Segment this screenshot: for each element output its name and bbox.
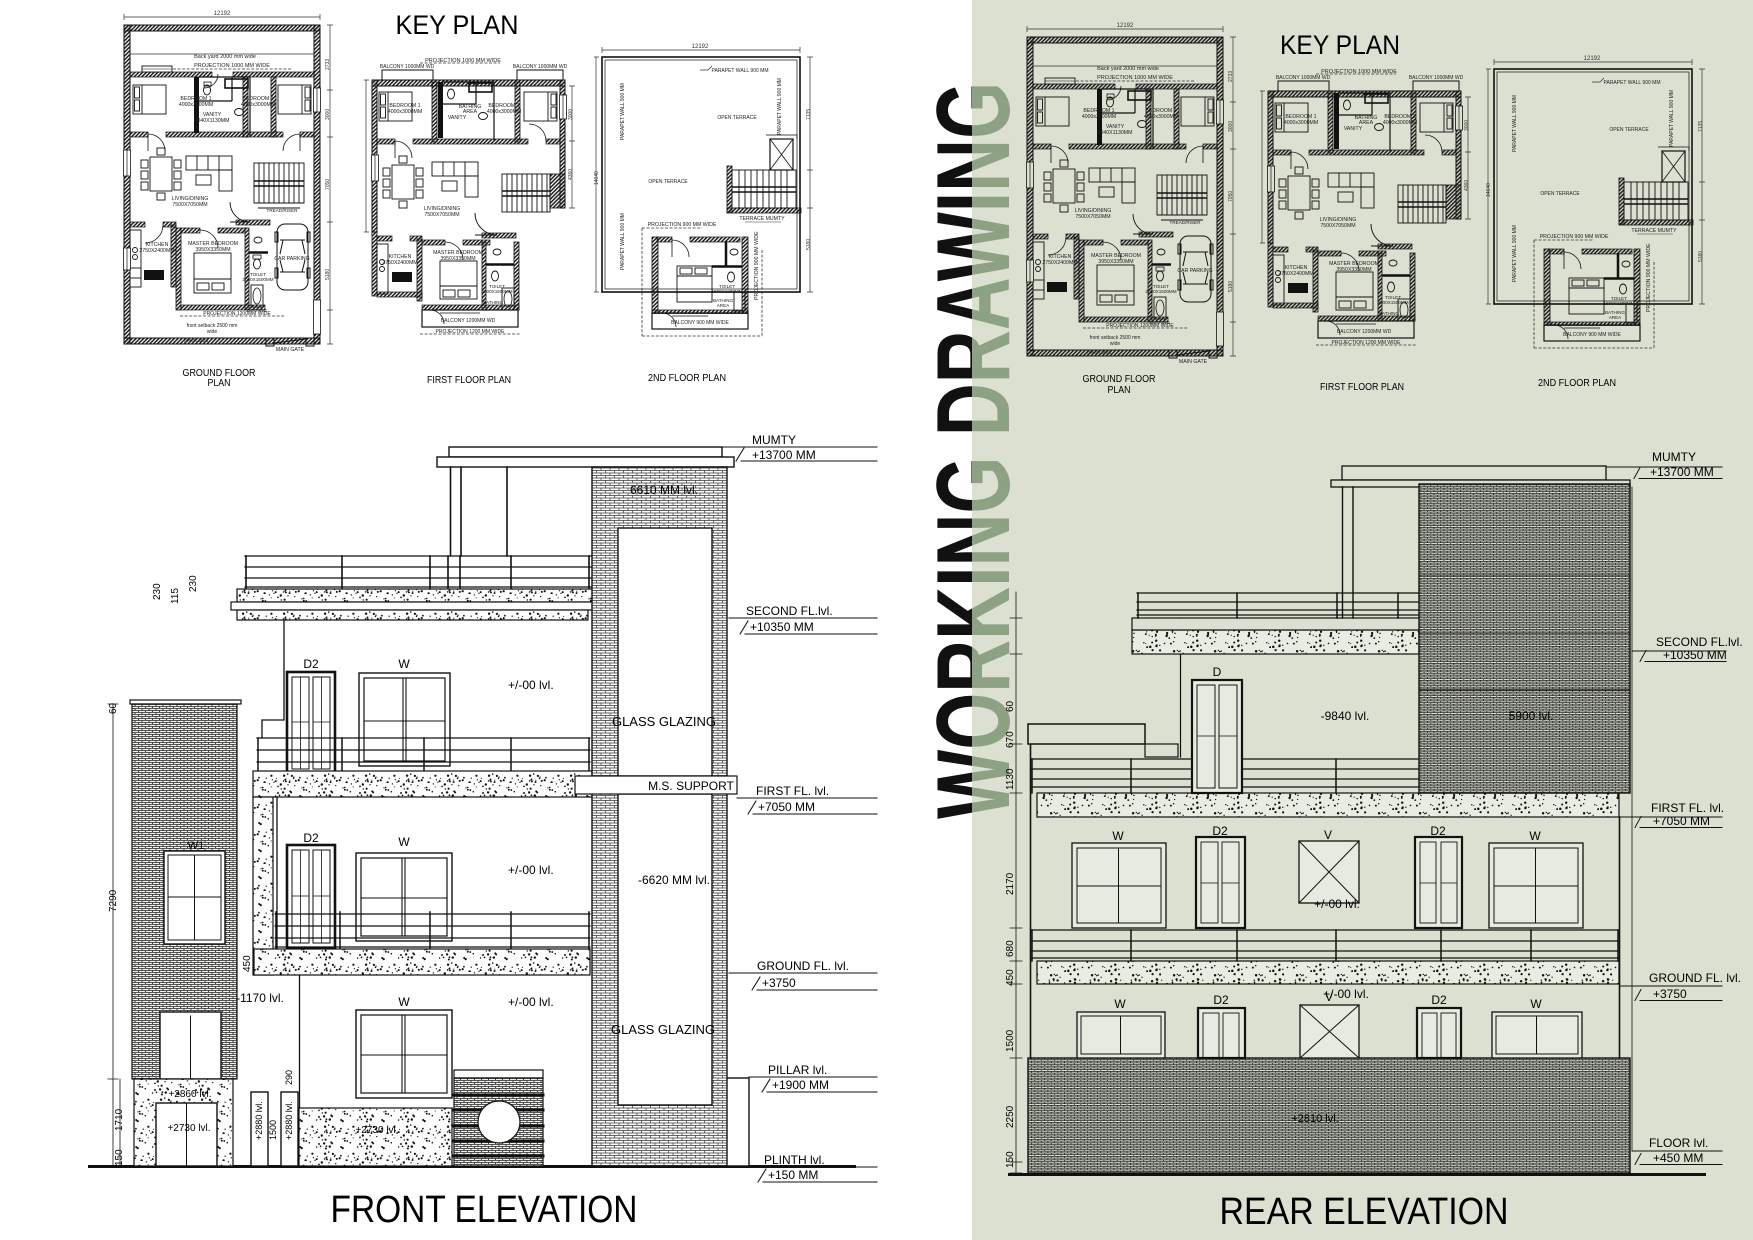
svg-text:D2: D2 bbox=[303, 831, 319, 845]
svg-text:+2730 lvl.: +2730 lvl. bbox=[355, 1125, 398, 1136]
svg-text:FIRST FLOOR PLAN: FIRST FLOOR PLAN bbox=[427, 374, 511, 386]
svg-text:1500X1200MM: 1500X1200MM bbox=[711, 289, 742, 294]
svg-text:W: W bbox=[398, 995, 410, 1009]
svg-text:1710: 1710 bbox=[114, 1108, 125, 1131]
svg-text:2733: 2733 bbox=[325, 59, 331, 70]
svg-text:W: W bbox=[1114, 997, 1126, 1011]
svg-text:450: 450 bbox=[1005, 969, 1016, 986]
svg-text:12192: 12192 bbox=[692, 44, 709, 50]
svg-text:MUMTY: MUMTY bbox=[752, 433, 796, 447]
svg-text:BALCONY 1200MM WD: BALCONY 1200MM WD bbox=[441, 318, 496, 324]
svg-text:MUMTY: MUMTY bbox=[1652, 450, 1696, 464]
svg-text:3950X3350MM: 3950X3350MM bbox=[195, 247, 230, 253]
svg-text:150: 150 bbox=[1005, 1151, 1016, 1168]
svg-text:1500: 1500 bbox=[268, 1120, 278, 1140]
svg-text:PARAPET WALL 900 MM: PARAPET WALL 900 MM bbox=[712, 68, 769, 74]
svg-text:FIRST FLOOR PLAN: FIRST FLOOR PLAN bbox=[1320, 381, 1404, 393]
svg-text:+2880 lvl.: +2880 lvl. bbox=[284, 1101, 294, 1140]
svg-text:12192: 12192 bbox=[214, 11, 231, 17]
svg-text:KEY PLAN: KEY PLAN bbox=[1280, 30, 1400, 60]
svg-text:BALCONY 1000MM WD: BALCONY 1000MM WD bbox=[380, 64, 435, 70]
svg-text:3000: 3000 bbox=[568, 109, 574, 120]
svg-text:FLOOR lvl.: FLOOR lvl. bbox=[1649, 1136, 1708, 1150]
svg-text:+3750: +3750 bbox=[1653, 987, 1687, 1001]
svg-text:5180: 5180 bbox=[325, 269, 331, 280]
svg-text:PLAN: PLAN bbox=[208, 377, 231, 389]
svg-text:3000: 3000 bbox=[325, 109, 331, 120]
svg-text:+10350 MM: +10350 MM bbox=[750, 620, 814, 634]
svg-text:+/-00 lvl.: +/-00 lvl. bbox=[1323, 987, 1369, 1001]
svg-text:+7050 MM: +7050 MM bbox=[1653, 814, 1710, 828]
svg-text:115: 115 bbox=[170, 588, 181, 604]
svg-text:W: W bbox=[1530, 997, 1542, 1011]
svg-text:OPEN TERRACE: OPEN TERRACE bbox=[648, 179, 688, 185]
svg-text:PROJECTION 1000 MM WIDE: PROJECTION 1000 MM WIDE bbox=[425, 58, 501, 64]
svg-text:+150 MM: +150 MM bbox=[768, 1168, 818, 1182]
svg-text:PARAPET WALL 900 MM: PARAPET WALL 900 MM bbox=[620, 213, 626, 270]
svg-text:4000x3000MM: 4000x3000MM bbox=[388, 109, 422, 115]
svg-text:PLINTH lvl.: PLINTH lvl. bbox=[764, 1153, 825, 1167]
svg-text:670: 670 bbox=[1005, 731, 1016, 748]
svg-text:GLASS GLAZING: GLASS GLAZING bbox=[612, 714, 716, 729]
svg-text:4000x3000MM: 4000x3000MM bbox=[179, 102, 213, 108]
svg-text:4360: 4360 bbox=[568, 169, 574, 180]
svg-text:2ND FLOOR PLAN: 2ND FLOOR PLAN bbox=[1538, 377, 1616, 389]
svg-text:PARAPET WALL 900 MM: PARAPET WALL 900 MM bbox=[777, 78, 783, 135]
svg-text:FIRST FL. lvl.: FIRST FL. lvl. bbox=[756, 784, 829, 798]
svg-text:+1900 MM: +1900 MM bbox=[772, 1078, 829, 1092]
svg-text:4000x3000MM: 4000x3000MM bbox=[241, 102, 275, 108]
svg-text:TERRACE MUMTY: TERRACE MUMTY bbox=[739, 216, 785, 222]
svg-text:BALCONY 1000MM WD: BALCONY 1000MM WD bbox=[513, 64, 568, 70]
svg-text:-9840 lvl.: -9840 lvl. bbox=[1321, 709, 1370, 723]
svg-text:V: V bbox=[1324, 828, 1332, 842]
svg-text:KEY PLAN: KEY PLAN bbox=[396, 10, 519, 40]
svg-text:1130: 1130 bbox=[1005, 768, 1016, 790]
svg-text:+2860 lvl.: +2860 lvl. bbox=[168, 1089, 211, 1100]
svg-text:+2880 lvl.: +2880 lvl. bbox=[254, 1101, 264, 1140]
svg-text:PROJECTION 1200MM WIDE: PROJECTION 1200MM WIDE bbox=[203, 311, 271, 317]
svg-text:TREAD/RISER: TREAD/RISER bbox=[267, 208, 299, 213]
svg-text:Back yard 2000 mm wide: Back yard 2000 mm wide bbox=[194, 54, 256, 60]
svg-text:+3750: +3750 bbox=[762, 976, 796, 990]
svg-text:+2730 lvl.: +2730 lvl. bbox=[167, 1123, 210, 1134]
svg-text:2170: 2170 bbox=[1005, 872, 1016, 895]
svg-text:PILLAR lvl.: PILLAR lvl. bbox=[768, 1063, 827, 1077]
svg-text:2040X1130MM: 2040X1130MM bbox=[195, 118, 230, 124]
svg-text:680: 680 bbox=[1005, 940, 1016, 957]
svg-text:D2: D2 bbox=[1431, 993, 1447, 1007]
svg-text:7500X7050MM: 7500X7050MM bbox=[424, 212, 459, 218]
svg-text:MAIN GATE: MAIN GATE bbox=[276, 347, 305, 353]
svg-text:D: D bbox=[1213, 665, 1222, 679]
svg-text:W1: W1 bbox=[188, 840, 205, 852]
svg-text:7500X7050MM: 7500X7050MM bbox=[172, 202, 207, 208]
svg-text:2750X2400MM: 2750X2400MM bbox=[139, 248, 174, 254]
svg-text:2000X1500MM: 2000X1500MM bbox=[242, 277, 273, 282]
svg-text:+/-00 lvl.: +/-00 lvl. bbox=[508, 678, 554, 692]
svg-text:+/-00 lvl.: +/-00 lvl. bbox=[1314, 897, 1360, 911]
svg-text:FIRST FL. lvl.: FIRST FL. lvl. bbox=[1651, 801, 1724, 815]
svg-text:CAR PARKING: CAR PARKING bbox=[274, 256, 309, 262]
svg-text:-1170 lvl.: -1170 lvl. bbox=[236, 991, 284, 1005]
svg-text:5900 lvl.: 5900 lvl. bbox=[1509, 709, 1554, 723]
svg-text:2ND FLOOR PLAN: 2ND FLOOR PLAN bbox=[648, 372, 726, 384]
svg-text:W: W bbox=[1529, 829, 1541, 843]
svg-text:D2: D2 bbox=[1213, 993, 1229, 1007]
svg-text:PROJECTION 900 MM WIDE: PROJECTION 900 MM WIDE bbox=[648, 222, 717, 228]
svg-text:PROJECTION 1200 MM WIDE: PROJECTION 1200 MM WIDE bbox=[436, 329, 506, 335]
svg-text:GROUND FL. lvl.: GROUND FL. lvl. bbox=[1649, 971, 1741, 985]
svg-text:VANITY: VANITY bbox=[448, 115, 467, 121]
svg-text:7135: 7135 bbox=[806, 109, 812, 120]
svg-text:7050: 7050 bbox=[325, 179, 331, 190]
svg-text:2250: 2250 bbox=[1005, 1105, 1016, 1128]
svg-text:6610 MM lvl.: 6610 MM lvl. bbox=[630, 483, 698, 497]
svg-text:2750X2400MM: 2750X2400MM bbox=[382, 260, 417, 266]
svg-text:GROUND FL. lvl.: GROUND FL. lvl. bbox=[757, 959, 849, 973]
svg-text:+450 MM: +450 MM bbox=[1653, 1151, 1703, 1165]
svg-text:OPEN TERRACE: OPEN TERRACE bbox=[717, 115, 757, 121]
svg-text:BALCONY 900 MM WIDE: BALCONY 900 MM WIDE bbox=[671, 320, 729, 326]
svg-text:7290: 7290 bbox=[108, 889, 119, 912]
svg-text:M.S. SUPPORT: M.S. SUPPORT bbox=[648, 779, 734, 793]
svg-text:1500: 1500 bbox=[1005, 1029, 1016, 1052]
svg-text:+/-00 lvl.: +/-00 lvl. bbox=[508, 863, 554, 877]
svg-text:+2810 lvl.: +2810 lvl. bbox=[1291, 1113, 1338, 1125]
svg-text:GLASS GLAZING: GLASS GLAZING bbox=[611, 1022, 715, 1037]
svg-text:3950X3350MM: 3950X3350MM bbox=[440, 256, 475, 262]
svg-text:150: 150 bbox=[114, 1149, 125, 1166]
svg-text:230: 230 bbox=[152, 583, 163, 600]
svg-text:5180: 5180 bbox=[806, 239, 812, 250]
svg-text:AREA: AREA bbox=[717, 303, 730, 308]
svg-text:PROJECTION 1000 MM WIDE: PROJECTION 1000 MM WIDE bbox=[194, 63, 270, 69]
svg-text:14640: 14640 bbox=[594, 171, 600, 185]
svg-text:REAR ELEVATION: REAR ELEVATION bbox=[1220, 1191, 1509, 1233]
svg-text:+10350 MM: +10350 MM bbox=[1663, 648, 1727, 662]
svg-text:+7050 MM: +7050 MM bbox=[758, 800, 815, 814]
svg-text:PROJECTION 900 MM WIDE: PROJECTION 900 MM WIDE bbox=[754, 231, 760, 300]
svg-text:2000X1500MM: 2000X1500MM bbox=[481, 289, 512, 294]
svg-text:450: 450 bbox=[242, 955, 253, 972]
svg-text:PARAPET WALL 900 MM: PARAPET WALL 900 MM bbox=[620, 83, 626, 140]
svg-text:4000x3000MM: 4000x3000MM bbox=[487, 109, 521, 115]
svg-text:FRONT ELEVATION: FRONT ELEVATION bbox=[331, 1189, 638, 1231]
svg-text:+/-00 lvl.: +/-00 lvl. bbox=[508, 995, 554, 1009]
svg-text:290: 290 bbox=[284, 1070, 294, 1085]
svg-text:wide: wide bbox=[207, 329, 218, 335]
svg-text:PLAN: PLAN bbox=[1108, 384, 1131, 396]
svg-text:W: W bbox=[1112, 829, 1124, 843]
svg-text:60: 60 bbox=[1005, 700, 1016, 712]
svg-text:W: W bbox=[398, 657, 410, 671]
svg-text:W: W bbox=[398, 835, 410, 849]
svg-text:D2: D2 bbox=[303, 657, 319, 671]
svg-text:green area: green area bbox=[184, 338, 208, 344]
svg-text:BATHING: BATHING bbox=[483, 300, 504, 305]
svg-text:230: 230 bbox=[188, 575, 199, 592]
svg-text:SECOND FL.lvl.: SECOND FL.lvl. bbox=[746, 604, 833, 618]
svg-text:-6620 MM lvl.: -6620 MM lvl. bbox=[638, 873, 710, 887]
svg-text:+13700 MM: +13700 MM bbox=[752, 448, 816, 462]
svg-text:SECOND FL.lvl.: SECOND FL.lvl. bbox=[1656, 635, 1743, 649]
